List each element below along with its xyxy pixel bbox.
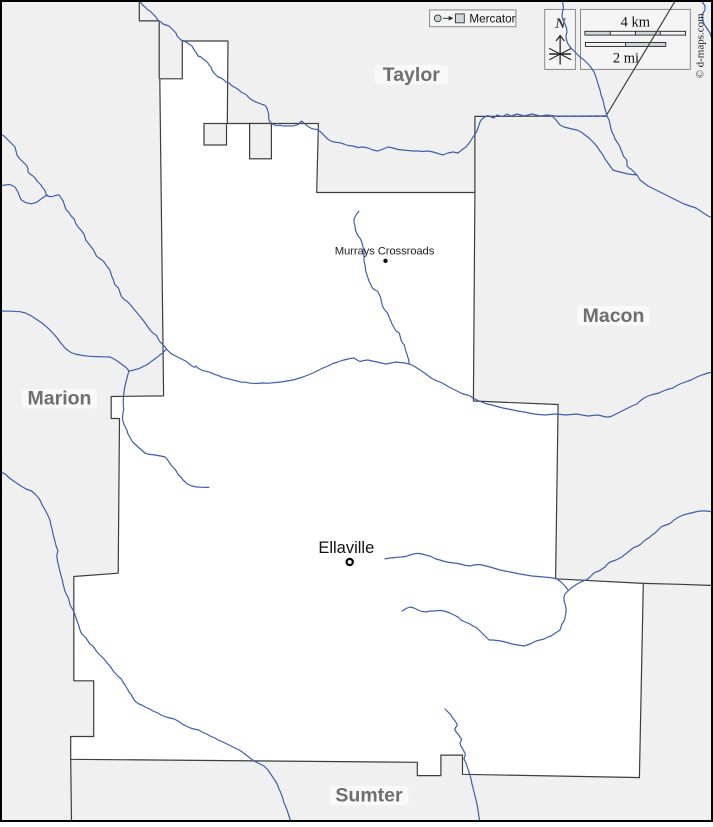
svg-text:Sumter: Sumter <box>335 785 403 807</box>
svg-text:© d-maps.com: © d-maps.com <box>695 13 707 79</box>
svg-text:Murrays Crossroads: Murrays Crossroads <box>335 246 435 258</box>
svg-text:4 km: 4 km <box>621 15 651 31</box>
svg-text:2 mi: 2 mi <box>613 51 639 67</box>
svg-text:Macon: Macon <box>583 305 645 327</box>
svg-text:Taylor: Taylor <box>383 64 440 86</box>
svg-text:Marion: Marion <box>28 388 92 410</box>
svg-text:Ellaville: Ellaville <box>318 539 374 557</box>
svg-text:Mercator: Mercator <box>469 13 515 26</box>
